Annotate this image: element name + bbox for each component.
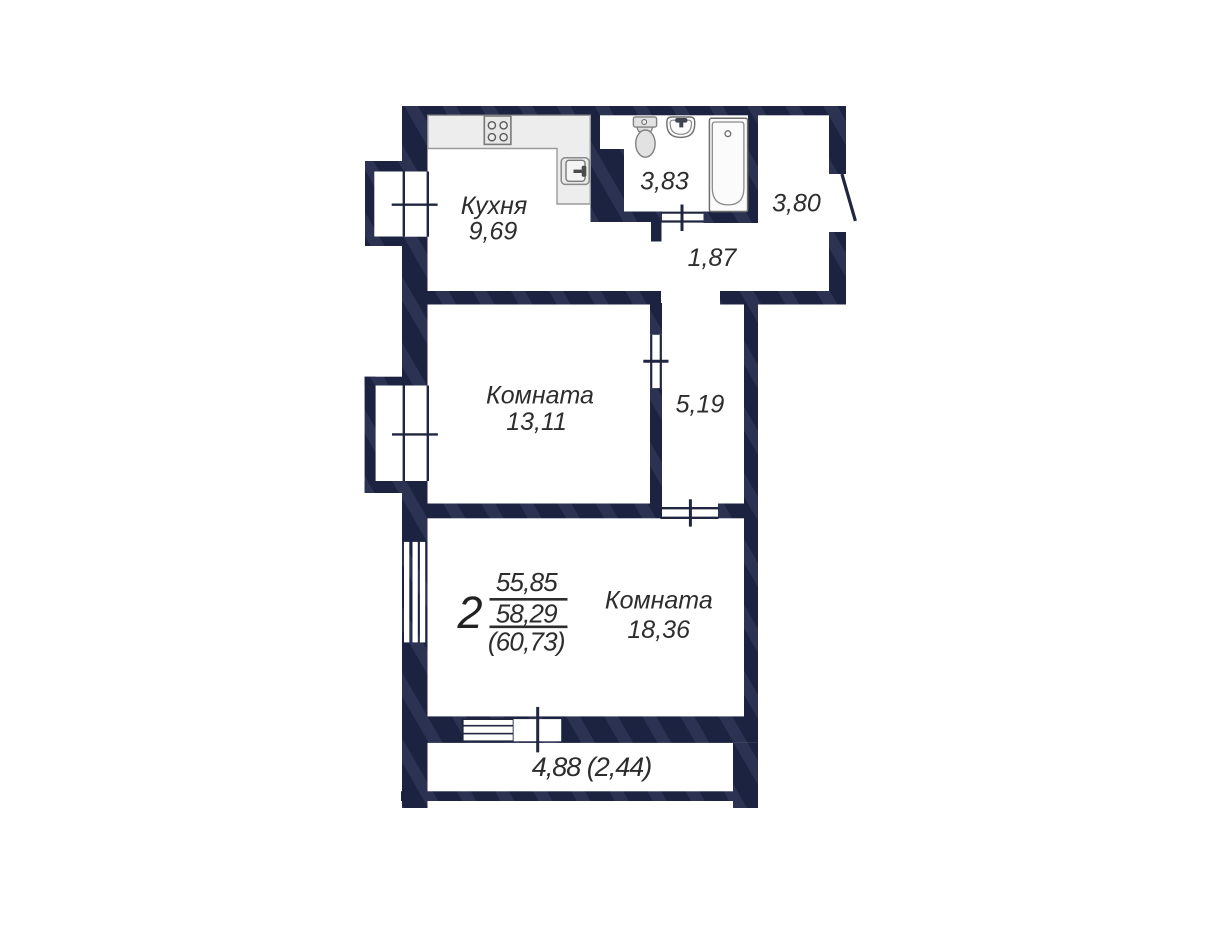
svg-text:9,69: 9,69 — [469, 218, 518, 246]
svg-text:Кухня: Кухня — [461, 192, 528, 220]
svg-text:5,19: 5,19 — [676, 391, 725, 419]
svg-text:1,87: 1,87 — [688, 244, 738, 272]
svg-text:58,29: 58,29 — [496, 599, 557, 629]
svg-text:(60,73): (60,73) — [488, 627, 565, 657]
svg-text:55,85: 55,85 — [496, 567, 558, 597]
svg-text:13,11: 13,11 — [506, 408, 567, 436]
svg-text:3,80: 3,80 — [772, 190, 821, 218]
svg-text:18,36: 18,36 — [627, 616, 690, 644]
svg-text:4,88 (2,44): 4,88 (2,44) — [532, 752, 652, 782]
svg-text:Комната: Комната — [605, 587, 713, 615]
svg-text:2: 2 — [456, 587, 482, 638]
svg-text:3,83: 3,83 — [640, 168, 689, 196]
svg-text:Комната: Комната — [486, 381, 594, 409]
